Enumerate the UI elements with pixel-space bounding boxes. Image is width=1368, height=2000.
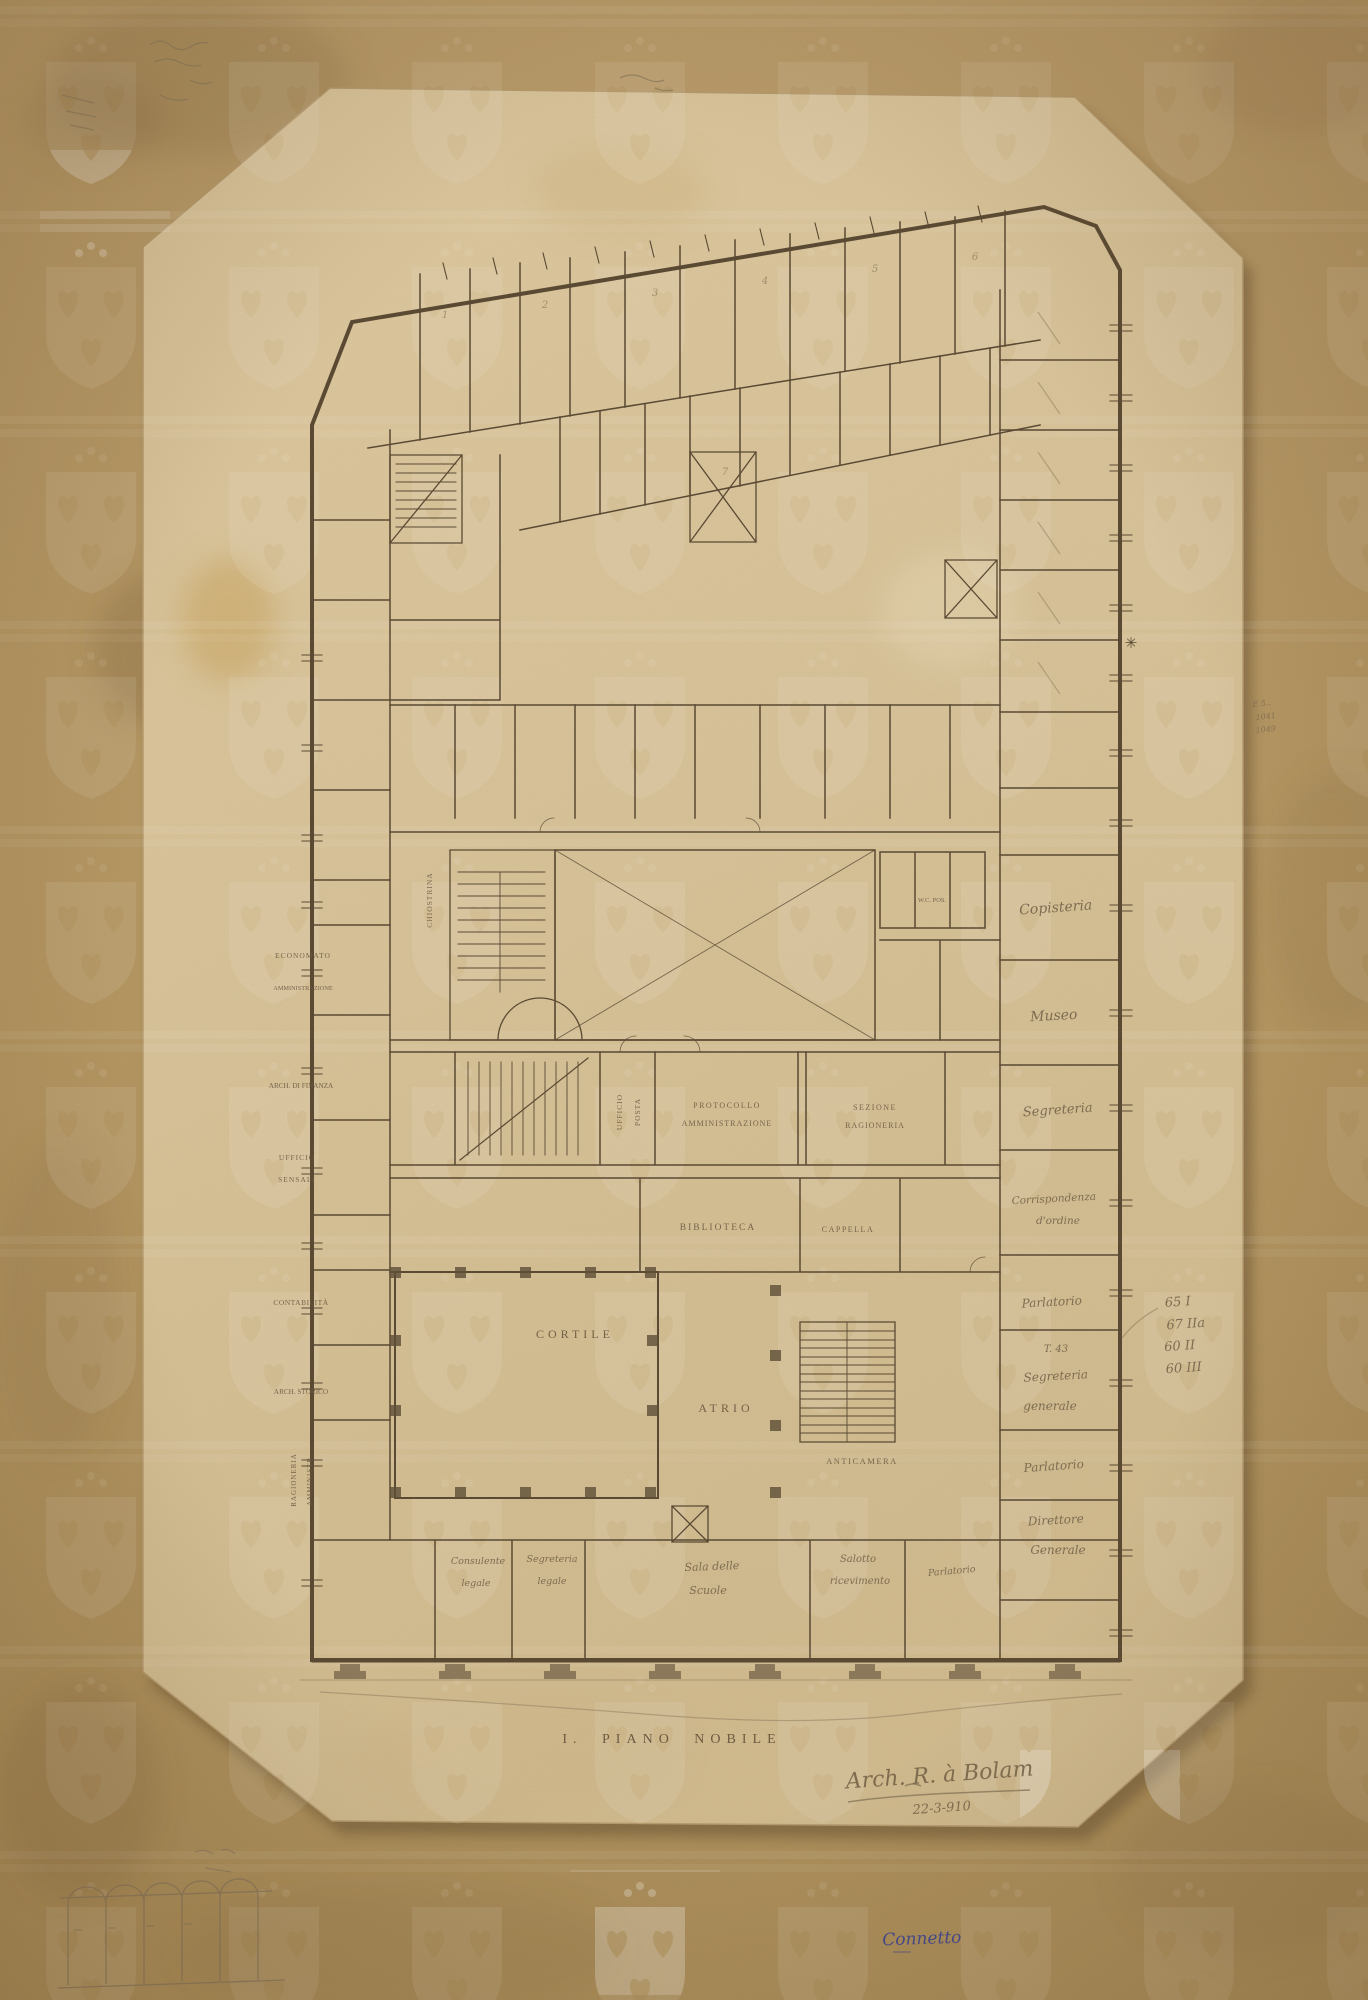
paper-texture bbox=[0, 0, 1368, 2000]
floor-plan-scan: CORTILE ATRIO BIBLIOTECA CAPPELLA ANTICA… bbox=[0, 0, 1368, 2000]
scanned-floor-plan: CORTILE ATRIO BIBLIOTECA CAPPELLA ANTICA… bbox=[0, 0, 1368, 2000]
